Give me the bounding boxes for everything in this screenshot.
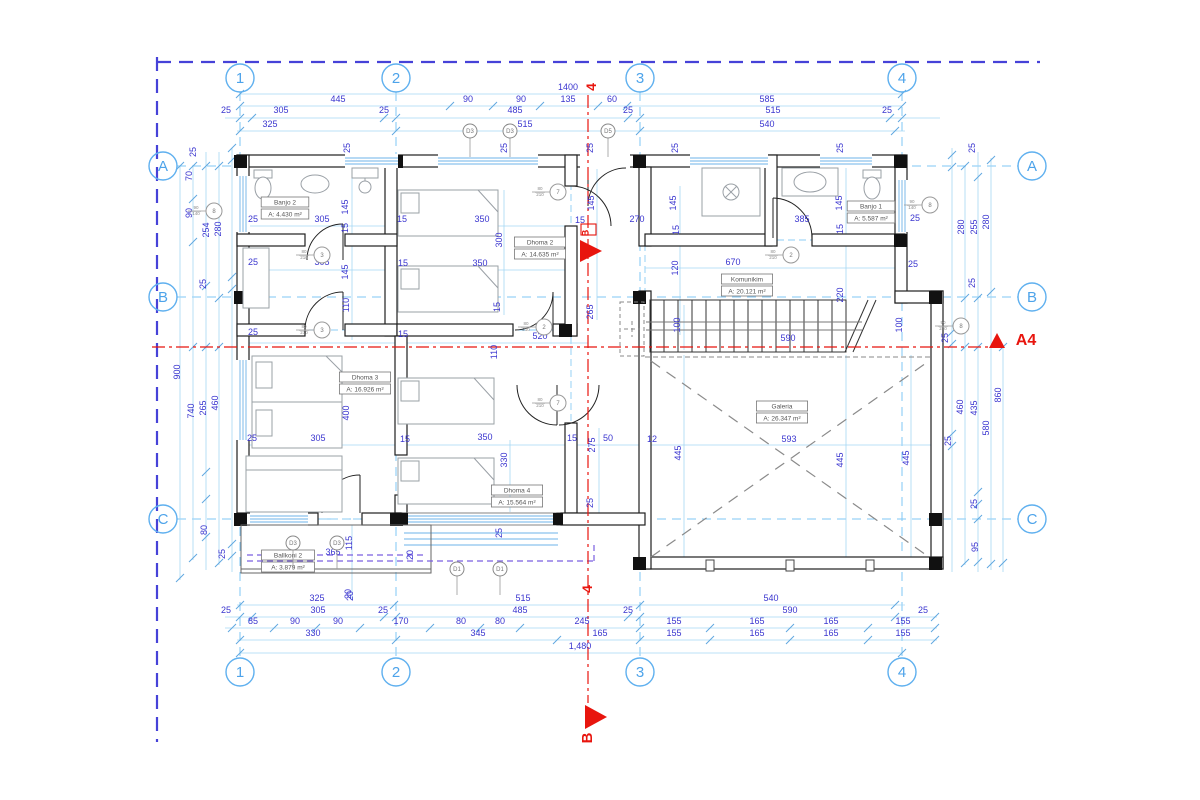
dimension-label: 25 [835, 143, 845, 153]
dimension-label: 25 [585, 498, 595, 508]
dimension-label: 15 [492, 302, 502, 312]
room-label: Dhoma 2A: 14.635 m² [514, 237, 565, 259]
section-label-b-mid: B [581, 229, 591, 236]
door-size-top: 90 [193, 205, 199, 210]
dimension-label: 25 [940, 333, 950, 343]
dimension-label: 90 [463, 94, 473, 104]
dimension-label: 15 [340, 223, 350, 233]
dimension-label: 280 [213, 221, 223, 236]
dimension-label: 155 [666, 628, 681, 638]
grid-bubble-label: 1 [236, 70, 244, 87]
dimension-label: 25 [198, 279, 208, 289]
room-area: A: 4.430 m² [268, 212, 302, 219]
dimension-label: 305 [314, 214, 329, 224]
dimension-label: 445 [673, 445, 683, 460]
galeria-void-cross [645, 357, 931, 557]
dimension-label: 540 [759, 119, 774, 129]
door-tag: 380210 [296, 247, 330, 263]
dimension-label: 25 [217, 549, 227, 559]
dimension-label: 1400 [558, 82, 578, 92]
grid-bubble-label: 4 [898, 70, 906, 87]
shelf [352, 168, 378, 178]
wardrobe [246, 456, 342, 512]
pillow [401, 381, 419, 401]
dimension-label: 485 [512, 605, 527, 615]
dimension-label: 25 [188, 147, 198, 157]
door-tag: 890140 [904, 197, 938, 213]
door-size-top: 80 [301, 324, 307, 329]
dimension-label: 460 [955, 399, 965, 414]
room-name: Banjo 2 [274, 200, 296, 207]
dimension-label: 305 [273, 105, 288, 115]
dimension-label: 25 [969, 499, 979, 509]
section-label-4-top: 4 [583, 83, 599, 91]
dimension-label: 155 [895, 616, 910, 626]
room-area: A: 5.587 m² [854, 216, 888, 223]
dimension-label: 280 [956, 219, 966, 234]
dimension-label: 670 [725, 257, 740, 267]
room-area: A: 15.564 m² [498, 500, 536, 507]
room-label: Banjo 1A: 5.587 m² [847, 201, 895, 223]
dimension-label: 25 [623, 105, 633, 115]
dimension-label: 145 [340, 199, 350, 214]
pillow [401, 461, 419, 481]
dimension-label: 145 [340, 264, 350, 279]
dimension-label: 25 [221, 605, 231, 615]
dimension-label: 25 [910, 213, 920, 223]
pillow [401, 269, 419, 289]
window-tag-label: D5 [604, 129, 612, 135]
dimension-label: 515 [515, 593, 530, 603]
grid-bubble-label: 1 [236, 664, 244, 681]
dimension-label: 400 [341, 405, 351, 420]
dimension-label: 12 [647, 434, 657, 444]
grid-bubble-label: A [158, 158, 168, 175]
grid-bubble-label: 2 [392, 70, 400, 87]
dimension-label: 280 [981, 214, 991, 229]
dimension-label: 25 [494, 528, 504, 538]
grid-bubble-label: C [158, 511, 169, 528]
door-size-top: 80 [537, 186, 543, 191]
pedestal-sink [359, 181, 371, 193]
dimension-label: 145 [668, 195, 678, 210]
dimension-label: 345 [470, 628, 485, 638]
dimension-label: 330 [305, 628, 320, 638]
dimension-label: 100 [894, 317, 904, 332]
grid-bubble-label: 2 [392, 664, 400, 681]
dimension-label: 25 [943, 436, 953, 446]
dimension-label: 80 [495, 616, 505, 626]
door-size-top: 80 [537, 397, 543, 402]
room-area: A: 14.635 m² [521, 252, 559, 259]
sink-basin [794, 172, 826, 192]
dimension-label: 110 [341, 298, 351, 312]
grid-bubble-label: A [1027, 158, 1037, 175]
doors-layer [305, 168, 812, 513]
dimension-label: 15 [397, 214, 407, 224]
dimension-label: 25 [248, 214, 258, 224]
room-name: Ballkoni 2 [274, 553, 303, 560]
dimension-label: 25 [378, 605, 388, 615]
dimension-label: 265 [198, 400, 208, 415]
dimension-label: 485 [507, 105, 522, 115]
toilet-bowl [255, 177, 271, 199]
dimension-label: 445 [330, 94, 345, 104]
room-area: A: 20.121 m² [728, 289, 766, 296]
dimension-label: 585 [759, 94, 774, 104]
dimension-label: 275 [587, 437, 597, 452]
dimension-label: 270 [629, 214, 644, 224]
room-label: Dhoma 4A: 15.564 m² [491, 485, 542, 507]
window-tag-label: D3 [289, 541, 297, 547]
window-tag-label: D3 [506, 129, 514, 135]
dimension-label: 165 [823, 616, 838, 626]
dimension-label: 900 [172, 364, 182, 379]
dimension-label: 120 [670, 260, 680, 275]
dimension-label: 25 [670, 143, 680, 153]
dimension-label: 155 [895, 628, 910, 638]
grid-bubble-label: 4 [898, 664, 906, 681]
dimension-label: 80 [199, 525, 209, 535]
dimension-label: 20 [343, 589, 353, 599]
window-tag-label: D1 [496, 567, 504, 573]
room-area: A: 26.347 m² [763, 416, 801, 423]
dimension-label: 325 [309, 593, 324, 603]
dimension-label: 580 [981, 420, 991, 435]
dimension-label: 740 [186, 403, 196, 418]
dimension-label: 80 [456, 616, 466, 626]
section-arrow-b-bottom [585, 705, 607, 729]
dimension-label: 50 [603, 433, 613, 443]
dimension-label: 115 [344, 536, 354, 550]
grid-bubble-label: 3 [636, 664, 644, 681]
dimension-label: 255 [969, 219, 979, 234]
dimension-label: 165 [592, 628, 607, 638]
dimension-label: 305 [310, 605, 325, 615]
grid-bubble-label: 3 [636, 70, 644, 87]
dimension-label: 1,480 [569, 641, 592, 651]
dimension-label: 265 [585, 304, 595, 319]
dimension-label: 385 [794, 214, 809, 224]
grid-bubble-label: B [1027, 289, 1037, 306]
dimension-label: 165 [749, 616, 764, 626]
pillow [401, 193, 419, 213]
dimension-label: 330 [499, 452, 509, 467]
room-name: Komunikim [731, 277, 763, 284]
dimension-label: 90 [290, 616, 300, 626]
dimension-label: 15 [398, 329, 408, 339]
dimension-label: 165 [823, 628, 838, 638]
dimension-label: 135 [560, 94, 575, 104]
dimension-label: 15 [398, 258, 408, 268]
room-label: KomunikimA: 20.121 m² [721, 274, 772, 296]
dimension-label: 325 [262, 119, 277, 129]
grid-bubble-label: C [1027, 511, 1038, 528]
dimension-label: 445 [835, 452, 845, 467]
dimension-label: 350 [477, 432, 492, 442]
dimension-label: 25 [247, 433, 257, 443]
sink-basin [301, 175, 329, 193]
floor-plan-sheet: 11223344AABBCC 1400445909013560585253052… [0, 0, 1200, 800]
dimension-label: 25 [342, 143, 352, 153]
room-name: Dhoma 4 [504, 488, 531, 495]
dimension-label: 25 [967, 143, 977, 153]
dimension-label: 25 [379, 105, 389, 115]
dimension-label: 110 [489, 345, 499, 359]
room-label: GaleriaA: 26.347 m² [756, 401, 807, 423]
dimension-label: 25 [585, 143, 595, 153]
section-label-4-bottom: 4 [579, 585, 595, 593]
dimension-label: 350 [472, 258, 487, 268]
room-name: Banjo 1 [860, 204, 882, 211]
door-size-top: 80 [523, 321, 529, 326]
window-tag-label: D3 [466, 129, 474, 135]
room-label: Dhoma 3A: 16.926 m² [339, 372, 390, 394]
room-area: A: 3.879 m² [271, 565, 305, 572]
dimension-label: 220 [835, 287, 845, 302]
dimension-label: 25 [499, 143, 509, 153]
window-tag: D1 [493, 562, 507, 595]
dimension-label: 25 [918, 605, 928, 615]
dimension-label: 170 [393, 616, 408, 626]
dimension-label: 435 [969, 400, 979, 415]
dimension-label: 15 [671, 225, 681, 235]
dimension-label: 25 [248, 327, 258, 337]
dimension-label: 145 [586, 195, 596, 210]
room-name: Dhoma 3 [352, 375, 379, 382]
door-size-top: 90 [940, 320, 946, 325]
dimension-label: 305 [310, 433, 325, 443]
dimension-label: 460 [210, 395, 220, 410]
dimension-label: 15 [400, 434, 410, 444]
window-tag-label: D1 [453, 567, 461, 573]
window-tag-label: D3 [333, 541, 341, 547]
door-size-top: 80 [301, 249, 307, 254]
door-tag: 280210 [765, 247, 799, 263]
door-size-top: 80 [770, 249, 776, 254]
dimension-label: 165 [749, 628, 764, 638]
dimension-label: 15 [575, 215, 585, 225]
grid-bubble-label: B [158, 289, 168, 306]
dimension-label: 593 [781, 434, 796, 444]
dimension-label: 445 [901, 450, 911, 465]
dimension-label: 515 [765, 105, 780, 115]
section-label-b-bottom: B [579, 732, 596, 743]
dimension-label: 254 [201, 222, 211, 237]
dimension-label: 90 [333, 616, 343, 626]
dimension-label: 155 [666, 616, 681, 626]
room-name: Galeria [772, 404, 793, 411]
dimension-label: 15 [567, 433, 577, 443]
dimension-label: 25 [908, 259, 918, 269]
dimension-label: 90 [516, 94, 526, 104]
room-label: Banjo 2A: 4.430 m² [261, 197, 309, 219]
dimension-label: 60 [607, 94, 617, 104]
window-tag: D1 [450, 562, 464, 595]
dimension-label: 70 [184, 171, 194, 181]
pillow [256, 362, 272, 388]
dimension-label: 245 [574, 616, 589, 626]
dimension-label: 860 [993, 387, 1003, 402]
dimension-label: 590 [782, 605, 797, 615]
dimension-label: 25 [623, 605, 633, 615]
door-size-top: 90 [909, 199, 915, 204]
dimension-label: 25 [967, 278, 977, 288]
dimension-label: 25 [882, 105, 892, 115]
dimension-label: 590 [780, 333, 795, 343]
window-tag: D5 [601, 124, 615, 157]
section-arrow-b-mid [580, 240, 602, 262]
dimension-label: 350 [474, 214, 489, 224]
room-name: Dhoma 2 [527, 240, 554, 247]
dimension-label: 20 [405, 550, 415, 560]
detail-label-a4: A4 [1016, 332, 1037, 349]
dimension-label: 25 [221, 105, 231, 115]
dimension-label: 15 [835, 224, 845, 234]
detail-arrow-a4 [989, 333, 1005, 348]
floor-plan-drawing: 11223344AABBCC 1400445909013560585253052… [0, 0, 1200, 800]
dimension-label: 145 [834, 195, 844, 210]
dimension-label: 25 [248, 257, 258, 267]
dimension-label: 100 [672, 317, 682, 332]
dimension-label: 300 [494, 232, 504, 247]
window-tag: D3 [463, 124, 477, 157]
pillow [256, 410, 272, 436]
dimension-label: 95 [970, 542, 980, 552]
dimension-label: 515 [517, 119, 532, 129]
dimension-label: 540 [763, 593, 778, 603]
room-area: A: 16.926 m² [346, 387, 384, 394]
door-tag: 780210 [532, 184, 566, 200]
door-tag: 780210 [532, 395, 566, 411]
dimension-label: 85 [248, 616, 258, 626]
toilet-bowl [864, 177, 880, 199]
